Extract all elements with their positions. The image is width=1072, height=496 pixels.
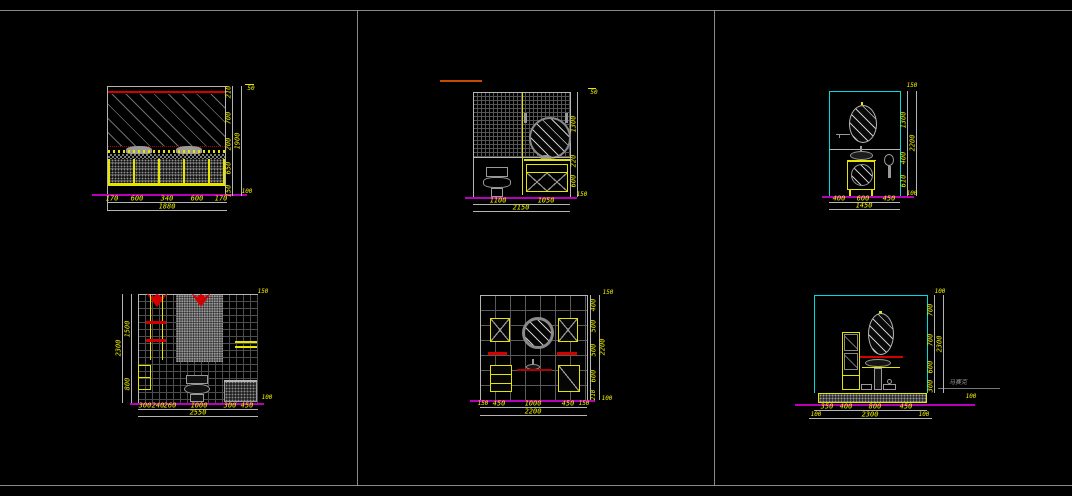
red-shelf — [146, 339, 166, 342]
floor-accessory — [861, 384, 872, 390]
tm-dim-bottom-total: 2150 — [513, 205, 530, 212]
elevation-bottom-right: 马赛克 350 400 800 450 100 2300 100 700 700… — [790, 285, 1030, 440]
drawer-line — [490, 383, 512, 384]
sconce-right — [565, 113, 568, 123]
low-cabinet-shelf — [138, 377, 151, 378]
paper-holder-tail — [888, 166, 891, 178]
tl-dim-bottom-3: 600 — [191, 196, 204, 203]
towel-bar — [235, 346, 257, 348]
counter-line — [524, 159, 570, 161]
br-dim-bottom-1: 400 — [840, 404, 853, 411]
wall-joint-line — [522, 92, 523, 195]
cabinet-stile — [208, 159, 210, 186]
toilet-tank — [186, 375, 208, 384]
frame-bottom-line — [0, 485, 1072, 486]
br-dim-overall-2: 100 — [919, 412, 930, 418]
bl-level-mark: 100 — [262, 395, 273, 401]
wainscot-line — [473, 157, 570, 158]
tr-corner-mark: 150 — [907, 83, 918, 89]
br-dim-bottom-3: 450 — [900, 404, 913, 411]
cabinet-kick — [440, 80, 482, 82]
lower-cabinet-right — [558, 365, 580, 392]
counter-line — [517, 369, 552, 371]
drawer-line — [490, 374, 512, 375]
bl-dim-bottom-total: 2550 — [190, 410, 207, 417]
bl-dim-left-1: 800 — [125, 378, 132, 391]
wall-border-left — [814, 295, 815, 393]
tm-dim-bottom-1: 1050 — [538, 198, 555, 205]
red-shelf-right — [557, 352, 577, 355]
tl-dim-right-total: 1900 — [235, 133, 242, 150]
material-leader-line — [938, 388, 1000, 389]
elevation-top-right: 400 600 450 1450 1300 400 610 2200 150 1… — [800, 70, 1010, 230]
upper-cabinet-right — [558, 318, 578, 342]
countertop — [108, 150, 225, 153]
tl-dim-right-0: 210 — [226, 86, 233, 99]
cabinet-stile — [108, 159, 110, 186]
wall-border-left — [829, 91, 830, 196]
tm-dim-right-0: 1300 — [571, 116, 578, 133]
red-shelf — [146, 321, 166, 324]
tr-dim-right-total: 2200 — [910, 135, 917, 152]
br-dim-right-0: 700 — [928, 304, 935, 317]
br-dim-right-2: 600 — [928, 361, 935, 374]
br-dim-bottom-0: 350 — [821, 404, 834, 411]
red-shelf — [860, 356, 903, 358]
wall-border-top — [814, 295, 927, 296]
br-corner-mark: 100 — [935, 289, 946, 295]
bm-dim-right-3: 600 — [591, 370, 598, 383]
bathtub — [224, 380, 257, 402]
bm-dim-bottom-0: 150 — [478, 401, 489, 407]
cabinet-stile — [158, 159, 160, 186]
upper-cabinet-left — [490, 318, 510, 342]
tr-dim-bottom-2: 450 — [883, 196, 896, 203]
tl-dim-bottom-1: 600 — [131, 196, 144, 203]
floor-accessory — [883, 384, 896, 390]
br-dim-overall-1: 2300 — [862, 412, 879, 419]
basin — [865, 359, 891, 367]
bl-dim-bottom-2: 260 — [164, 403, 177, 410]
cabinet-medallion — [851, 164, 873, 186]
tl-level-mark: 100 — [242, 189, 253, 195]
bm-corner-mark: 150 — [603, 290, 614, 296]
tl-corner-mark: 50 — [247, 86, 254, 92]
cabinet-base-rail — [108, 183, 225, 186]
vessel-basin — [850, 151, 873, 160]
mirror-top-trim — [108, 91, 225, 93]
bl-dim-left-0: 1500 — [125, 321, 132, 338]
bm-dim-right-1: 500 — [591, 320, 598, 333]
tl-dim-bottom-total: 1880 — [159, 204, 176, 211]
tm-level-mark: 150 — [577, 192, 588, 198]
bm-dim-right-total: 2200 — [600, 339, 607, 356]
bm-dim-right-4: 210 — [591, 390, 597, 401]
tm-dim-bottom-0: 1100 — [490, 198, 507, 205]
cabinet-door-left — [527, 173, 547, 191]
bm-dim-right-0: 400 — [591, 299, 598, 312]
oval-mirror — [868, 313, 894, 355]
sconce-left — [524, 113, 527, 123]
bm-dim-bottom-4: 150 — [579, 401, 590, 407]
niche-edge-left — [150, 295, 151, 360]
bl-dim-bottom-0: 300 — [139, 403, 152, 410]
shelf-bracket — [839, 134, 840, 138]
tr-dim-right-0: 1300 — [901, 112, 908, 129]
towel-bar — [235, 341, 257, 343]
bm-dim-bottom-1: 450 — [493, 401, 506, 408]
toilet-bowl — [184, 384, 210, 394]
br-dim-bottom-2: 800 — [869, 404, 882, 411]
bl-dim-bottom-1: 240 — [152, 403, 165, 410]
cabinet-shelf-line — [842, 375, 860, 376]
tr-level-mark: 100 — [907, 191, 918, 197]
oval-mirror — [849, 105, 877, 143]
br-dim-right-total: 2300 — [937, 336, 944, 353]
frame-top-line — [0, 10, 1072, 11]
round-mirror — [522, 317, 554, 349]
elevation-top-middle: 1100 1050 2150 1300 220 600 50 150 — [440, 80, 650, 225]
floor-accessory — [887, 379, 892, 384]
elevation-bottom-middle: 150 450 1000 450 150 2200 400 500 500 60… — [455, 285, 665, 435]
tl-dim-right-4: 150 — [226, 185, 233, 198]
floor-line — [465, 197, 577, 199]
lower-cabinet-left — [490, 365, 512, 392]
tl-dim-bottom-2: 340 — [161, 196, 174, 203]
wall-edge-left — [473, 92, 474, 197]
red-shelf-left — [488, 352, 507, 355]
ceiling-line — [480, 295, 587, 296]
br-dim-right-3: 300 — [928, 380, 935, 393]
bl-dim-bottom-4: 300 — [224, 403, 237, 410]
tl-dim-bottom-0: 170 — [106, 196, 119, 203]
counter-back-trim — [108, 146, 225, 147]
bm-dim-bottom-total: 2200 — [525, 409, 542, 416]
tr-dim-right-2: 610 — [901, 175, 908, 188]
cabinet-door-right — [547, 173, 567, 191]
wainscot-line — [829, 149, 900, 150]
ceiling-line — [107, 86, 227, 87]
tr-dim-bottom-0: 400 — [833, 196, 846, 203]
br-dim-overall-0: 100 — [811, 412, 822, 418]
tl-dim-right-1: 700 — [226, 112, 233, 125]
bm-dim-bottom-3: 450 — [562, 401, 575, 408]
bathtub-rim — [224, 380, 257, 382]
bm-level-mark: 100 — [602, 396, 613, 402]
wall-edge-left — [480, 295, 481, 400]
sink-pedestal — [874, 368, 882, 390]
bm-dim-right-2: 500 — [591, 344, 598, 357]
toilet-tank — [486, 167, 508, 177]
mirror — [108, 94, 225, 146]
niche-edge-right — [162, 295, 163, 360]
frame-divider-1 — [357, 10, 358, 485]
cabinet-glass-door — [844, 334, 858, 351]
cabinet-stile — [183, 159, 185, 186]
cad-canvas: 170 600 340 600 170 1880 210 700 200 650… — [0, 0, 1072, 496]
bl-corner-mark: 150 — [258, 289, 269, 295]
elevation-bottom-left: 300 240 260 1000 300 450 2550 1500 800 2… — [100, 285, 310, 435]
cabinet-stile — [133, 159, 135, 186]
paper-holder — [884, 154, 894, 166]
br-level-mark: 100 — [966, 394, 977, 400]
tl-dim-right-3: 650 — [226, 162, 233, 175]
tm-dim-right-1: 220 — [571, 155, 578, 168]
tr-dim-bottom-total: 1450 — [856, 203, 873, 210]
mosaic-panel — [176, 295, 223, 362]
cabinet-glass-door — [844, 353, 858, 370]
tm-dim-right-2: 600 — [571, 175, 578, 188]
tm-corner-mark: 50 — [590, 90, 597, 96]
frame-divider-2 — [714, 10, 715, 485]
toilet-bowl — [483, 177, 511, 188]
bl-dim-bottom-5: 450 — [241, 403, 254, 410]
tr-dim-right-1: 400 — [901, 152, 908, 165]
wall-border-top — [829, 91, 900, 92]
round-mirror — [529, 117, 571, 159]
bl-dim-left-total: 2300 — [116, 340, 123, 357]
tl-dim-right-2: 200 — [226, 138, 233, 151]
bm-dim-bottom-2: 1000 — [525, 401, 542, 408]
br-material-note: 马赛克 — [949, 380, 967, 386]
mosaic-plinth — [818, 393, 927, 403]
wall-edge-right — [587, 295, 588, 400]
elevation-top-left: 170 600 340 600 170 1880 210 700 200 650… — [100, 80, 310, 225]
br-dim-right-1: 700 — [928, 334, 935, 347]
